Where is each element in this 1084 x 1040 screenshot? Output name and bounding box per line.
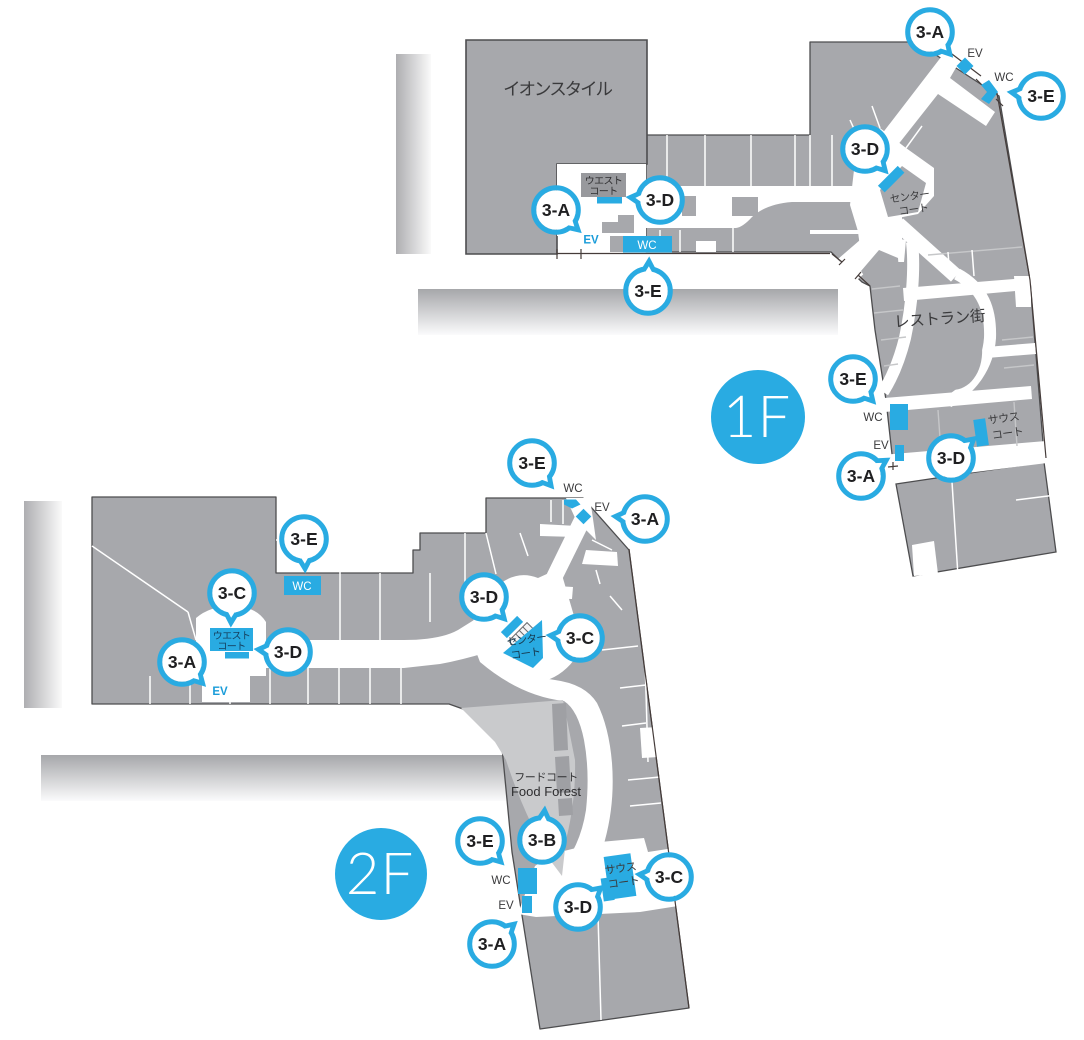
svg-text:3-E: 3-E (1027, 86, 1054, 106)
svg-text:3-D: 3-D (937, 448, 965, 468)
svg-text:EV: EV (594, 502, 610, 514)
svg-text:Food Forest: Food Forest (511, 784, 581, 799)
svg-text:3-E: 3-E (290, 529, 317, 549)
svg-text:WC: WC (491, 875, 510, 887)
svg-text:3-E: 3-E (518, 453, 545, 473)
svg-text:EV: EV (583, 235, 599, 247)
svg-text:WC: WC (563, 483, 582, 495)
svg-text:EV: EV (498, 900, 514, 912)
svg-text:3-C: 3-C (655, 867, 684, 887)
svg-text:EV: EV (212, 686, 228, 698)
svg-text:3-E: 3-E (839, 369, 866, 389)
svg-text:3-A: 3-A (631, 509, 660, 529)
svg-text:3-E: 3-E (634, 281, 661, 301)
svg-text:WC: WC (994, 72, 1013, 84)
svg-text:3-C: 3-C (218, 583, 247, 603)
svg-text:3-C: 3-C (566, 628, 595, 648)
svg-text:3-D: 3-D (646, 190, 674, 210)
svg-text:3-A: 3-A (542, 200, 571, 220)
svg-text:3-D: 3-D (851, 139, 879, 159)
svg-text:WC: WC (292, 581, 311, 593)
svg-text:3-B: 3-B (528, 830, 556, 850)
svg-text:3-A: 3-A (168, 652, 197, 672)
svg-text:3-A: 3-A (916, 22, 945, 42)
svg-text:3-D: 3-D (274, 642, 302, 662)
svg-text:3-D: 3-D (470, 587, 498, 607)
svg-text:3-E: 3-E (466, 831, 493, 851)
svg-text:EV: EV (873, 440, 889, 452)
svg-text:WC: WC (863, 412, 882, 424)
svg-text:EV: EV (967, 48, 983, 60)
svg-text:WC: WC (637, 240, 656, 252)
svg-text:3-A: 3-A (847, 466, 876, 486)
svg-text:3-A: 3-A (478, 934, 507, 954)
svg-text:3-D: 3-D (564, 897, 592, 917)
